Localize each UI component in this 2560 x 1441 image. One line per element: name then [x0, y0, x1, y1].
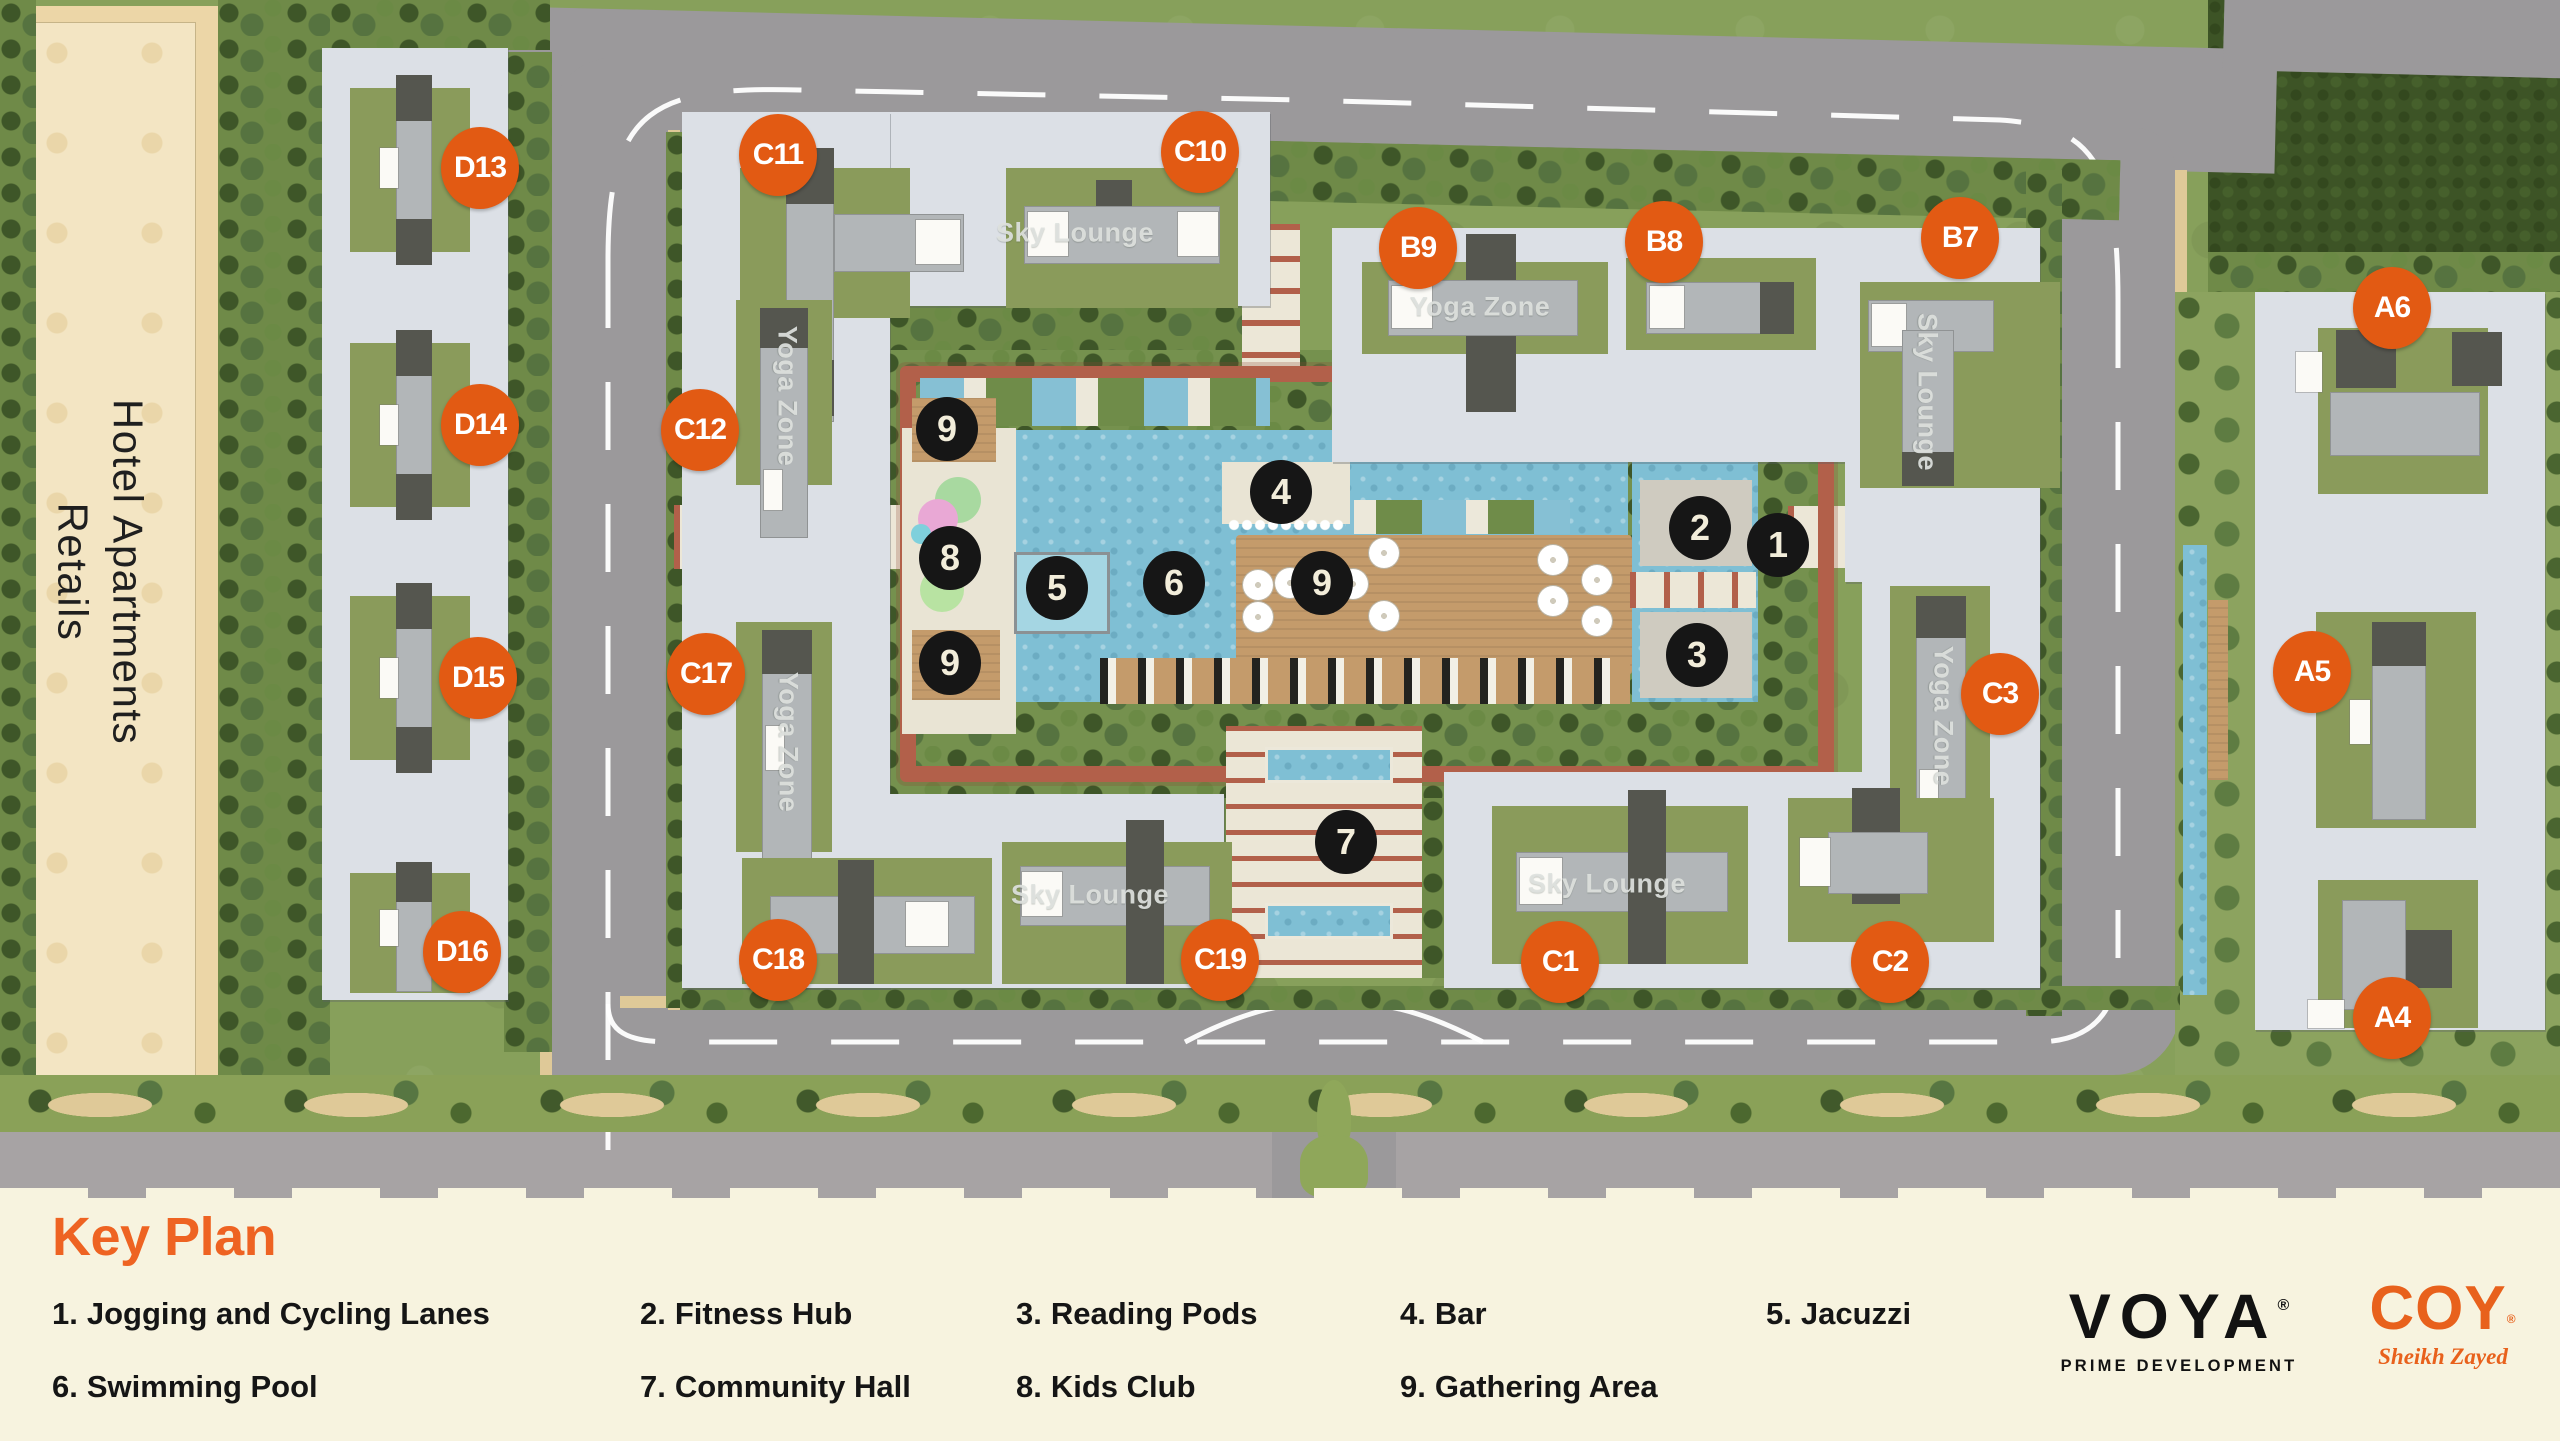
building [2452, 332, 2502, 386]
amenity-marker[interactable]: 4 [1250, 460, 1312, 524]
building [396, 75, 432, 121]
amenity-marker[interactable]: 9 [1291, 551, 1353, 615]
umbrella [1243, 602, 1273, 632]
building [916, 220, 960, 264]
coy-logo-name: COY® [2348, 1278, 2538, 1340]
legend-item-label: Fitness Hub [675, 1296, 852, 1331]
building [380, 405, 398, 445]
trees-strip [218, 0, 330, 1132]
amenity-marker[interactable]: 1 [1747, 513, 1809, 577]
trees-strip [1010, 300, 1270, 355]
amenity-marker[interactable]: 9 [919, 631, 981, 695]
a-cluster-pool-deck [2208, 600, 2228, 780]
building [2406, 930, 2452, 988]
building-badge[interactable]: B7 [1921, 197, 1999, 279]
zone-label: Sky Lounge [1011, 880, 1169, 911]
plaza-pool [1268, 750, 1390, 780]
legend-item: 5.Jacuzzi [1766, 1296, 1911, 1332]
amenity-marker[interactable]: 9 [916, 397, 978, 461]
building [380, 910, 398, 946]
voya-logo: VOYA® PRIME DEVELOPMENT [2014, 1286, 2344, 1376]
building [396, 583, 432, 629]
building-badge[interactable]: B8 [1625, 201, 1703, 283]
legend-item-label: Swimming Pool [87, 1369, 318, 1404]
building-badge[interactable]: A5 [2273, 631, 2351, 713]
building [762, 630, 812, 674]
building-badge[interactable]: C12 [661, 389, 739, 471]
building-badge[interactable]: D13 [441, 127, 519, 209]
legend-item: 2.Fitness Hub [640, 1296, 852, 1332]
building [2350, 700, 2370, 744]
legend-item: 4.Bar [1400, 1296, 1487, 1332]
voya-registered-mark: ® [2277, 1297, 2289, 1314]
building [2296, 352, 2322, 392]
building [1178, 212, 1218, 256]
trees-strip [330, 0, 550, 50]
building [2330, 392, 2480, 456]
hotel-label-line1: Hotel Apartments [100, 192, 155, 952]
building-badge[interactable]: C18 [739, 919, 817, 1001]
gathering-deck [1236, 535, 1632, 675]
legend-item-label: Kids Club [1051, 1369, 1196, 1404]
zone-label: Yoga Zone [772, 326, 803, 467]
building [396, 862, 432, 902]
building [1650, 286, 1684, 328]
building [396, 219, 432, 265]
legend-item: 8.Kids Club [1016, 1369, 1196, 1405]
legend-item-number: 1. [52, 1296, 78, 1331]
building [396, 330, 432, 376]
legend-item: 1.Jogging and Cycling Lanes [52, 1296, 490, 1332]
legend-item-label: Jacuzzi [1801, 1296, 1911, 1331]
building [380, 148, 398, 188]
trees-strip [504, 52, 552, 1052]
building [1828, 832, 1928, 894]
zone-label: Yoga Zone [1928, 646, 1959, 787]
amenity-marker[interactable]: 2 [1669, 496, 1731, 560]
building [2372, 622, 2426, 666]
building-badge[interactable]: C3 [1961, 653, 2039, 735]
building-badge[interactable]: C10 [1161, 111, 1239, 193]
legend-item-number: 5. [1766, 1296, 1792, 1331]
legend-item: 9.Gathering Area [1400, 1369, 1658, 1405]
hotel-label-line2: Retails [45, 192, 100, 952]
legend-item-number: 3. [1016, 1296, 1042, 1331]
umbrella [1369, 601, 1399, 631]
legend-item: 7.Community Hall [640, 1369, 911, 1405]
legend-item: 6.Swimming Pool [52, 1369, 318, 1405]
building-badge[interactable]: A4 [2353, 977, 2431, 1059]
zone-label: Sky Lounge [996, 218, 1154, 249]
building [396, 727, 432, 773]
legend-item-number: 9. [1400, 1369, 1426, 1404]
legend-item-number: 8. [1016, 1369, 1042, 1404]
zone-label: Yoga Zone [773, 672, 804, 813]
umbrella [1538, 545, 1568, 575]
a-cluster-lap-pool [2183, 545, 2207, 995]
building-badge[interactable]: A6 [2353, 267, 2431, 349]
palm-strip [0, 1075, 2560, 1132]
zone-label: Sky Lounge [1912, 313, 1943, 471]
voya-logo-tagline: PRIME DEVELOPMENT [2014, 1357, 2344, 1376]
amenity-marker[interactable]: 3 [1666, 623, 1728, 687]
building [1096, 180, 1132, 206]
coy-logo-sub: Sheikh Zayed [2348, 1344, 2538, 1370]
building [764, 470, 782, 510]
building-badge[interactable]: C19 [1181, 919, 1259, 1001]
amenity-marker[interactable]: 7 [1315, 810, 1377, 874]
building-badge[interactable]: C11 [739, 114, 817, 196]
legend-title: Key Plan [52, 1206, 276, 1268]
sun-loungers [1100, 658, 1630, 704]
pergola-plaza [1630, 572, 1756, 608]
umbrella [1538, 586, 1568, 616]
legend-item-label: Jogging and Cycling Lanes [87, 1296, 490, 1331]
legend-item-label: Reading Pods [1051, 1296, 1258, 1331]
amenity-marker[interactable]: 5 [1026, 556, 1088, 620]
building-badge[interactable]: C17 [667, 633, 745, 715]
masterplan-canvas: Hotel Apartments Retails Sky LoungeYoga … [0, 0, 2560, 1441]
zone-label: Yoga Zone [1410, 292, 1551, 323]
trees-strip [680, 986, 2180, 1010]
legend-item: 3.Reading Pods [1016, 1296, 1258, 1332]
building [838, 860, 874, 984]
legend-item-number: 6. [52, 1369, 78, 1404]
legend-item-label: Bar [1435, 1296, 1487, 1331]
legend-item-number: 2. [640, 1296, 666, 1331]
building [380, 658, 398, 698]
umbrella [1582, 565, 1612, 595]
building [906, 902, 948, 946]
zone-label: Sky Lounge [1528, 869, 1686, 900]
legend-item-number: 7. [640, 1369, 666, 1404]
amenity-marker[interactable]: 6 [1143, 551, 1205, 615]
voya-logo-name: VOYA® [2014, 1286, 2344, 1349]
building-badge[interactable]: B9 [1379, 207, 1457, 289]
plaza-pool [1268, 906, 1390, 936]
building [1872, 304, 1906, 346]
building-badge[interactable]: C2 [1851, 921, 1929, 1003]
building [1800, 838, 1830, 886]
legend-item-label: Gathering Area [1435, 1369, 1658, 1404]
building-badge[interactable]: D14 [441, 384, 519, 466]
umbrella [1243, 570, 1273, 600]
legend-item-label: Community Hall [675, 1369, 911, 1404]
coy-logo: COY® Sheikh Zayed [2348, 1278, 2538, 1370]
hotel-apartments-label: Hotel Apartments Retails [45, 192, 154, 952]
coy-registered-mark: ® [2507, 1312, 2517, 1326]
trees-strip [0, 0, 36, 1132]
building [1760, 282, 1794, 334]
umbrella [1582, 606, 1612, 636]
building [2308, 1000, 2344, 1028]
building [396, 474, 432, 520]
building [1916, 596, 1966, 638]
legend-item-number: 4. [1400, 1296, 1426, 1331]
building-badge[interactable]: C1 [1521, 921, 1599, 1003]
building-badge[interactable]: D15 [439, 637, 517, 719]
building-badge[interactable]: D16 [423, 911, 501, 993]
amenity-marker[interactable]: 8 [919, 526, 981, 590]
umbrella [1369, 538, 1399, 568]
